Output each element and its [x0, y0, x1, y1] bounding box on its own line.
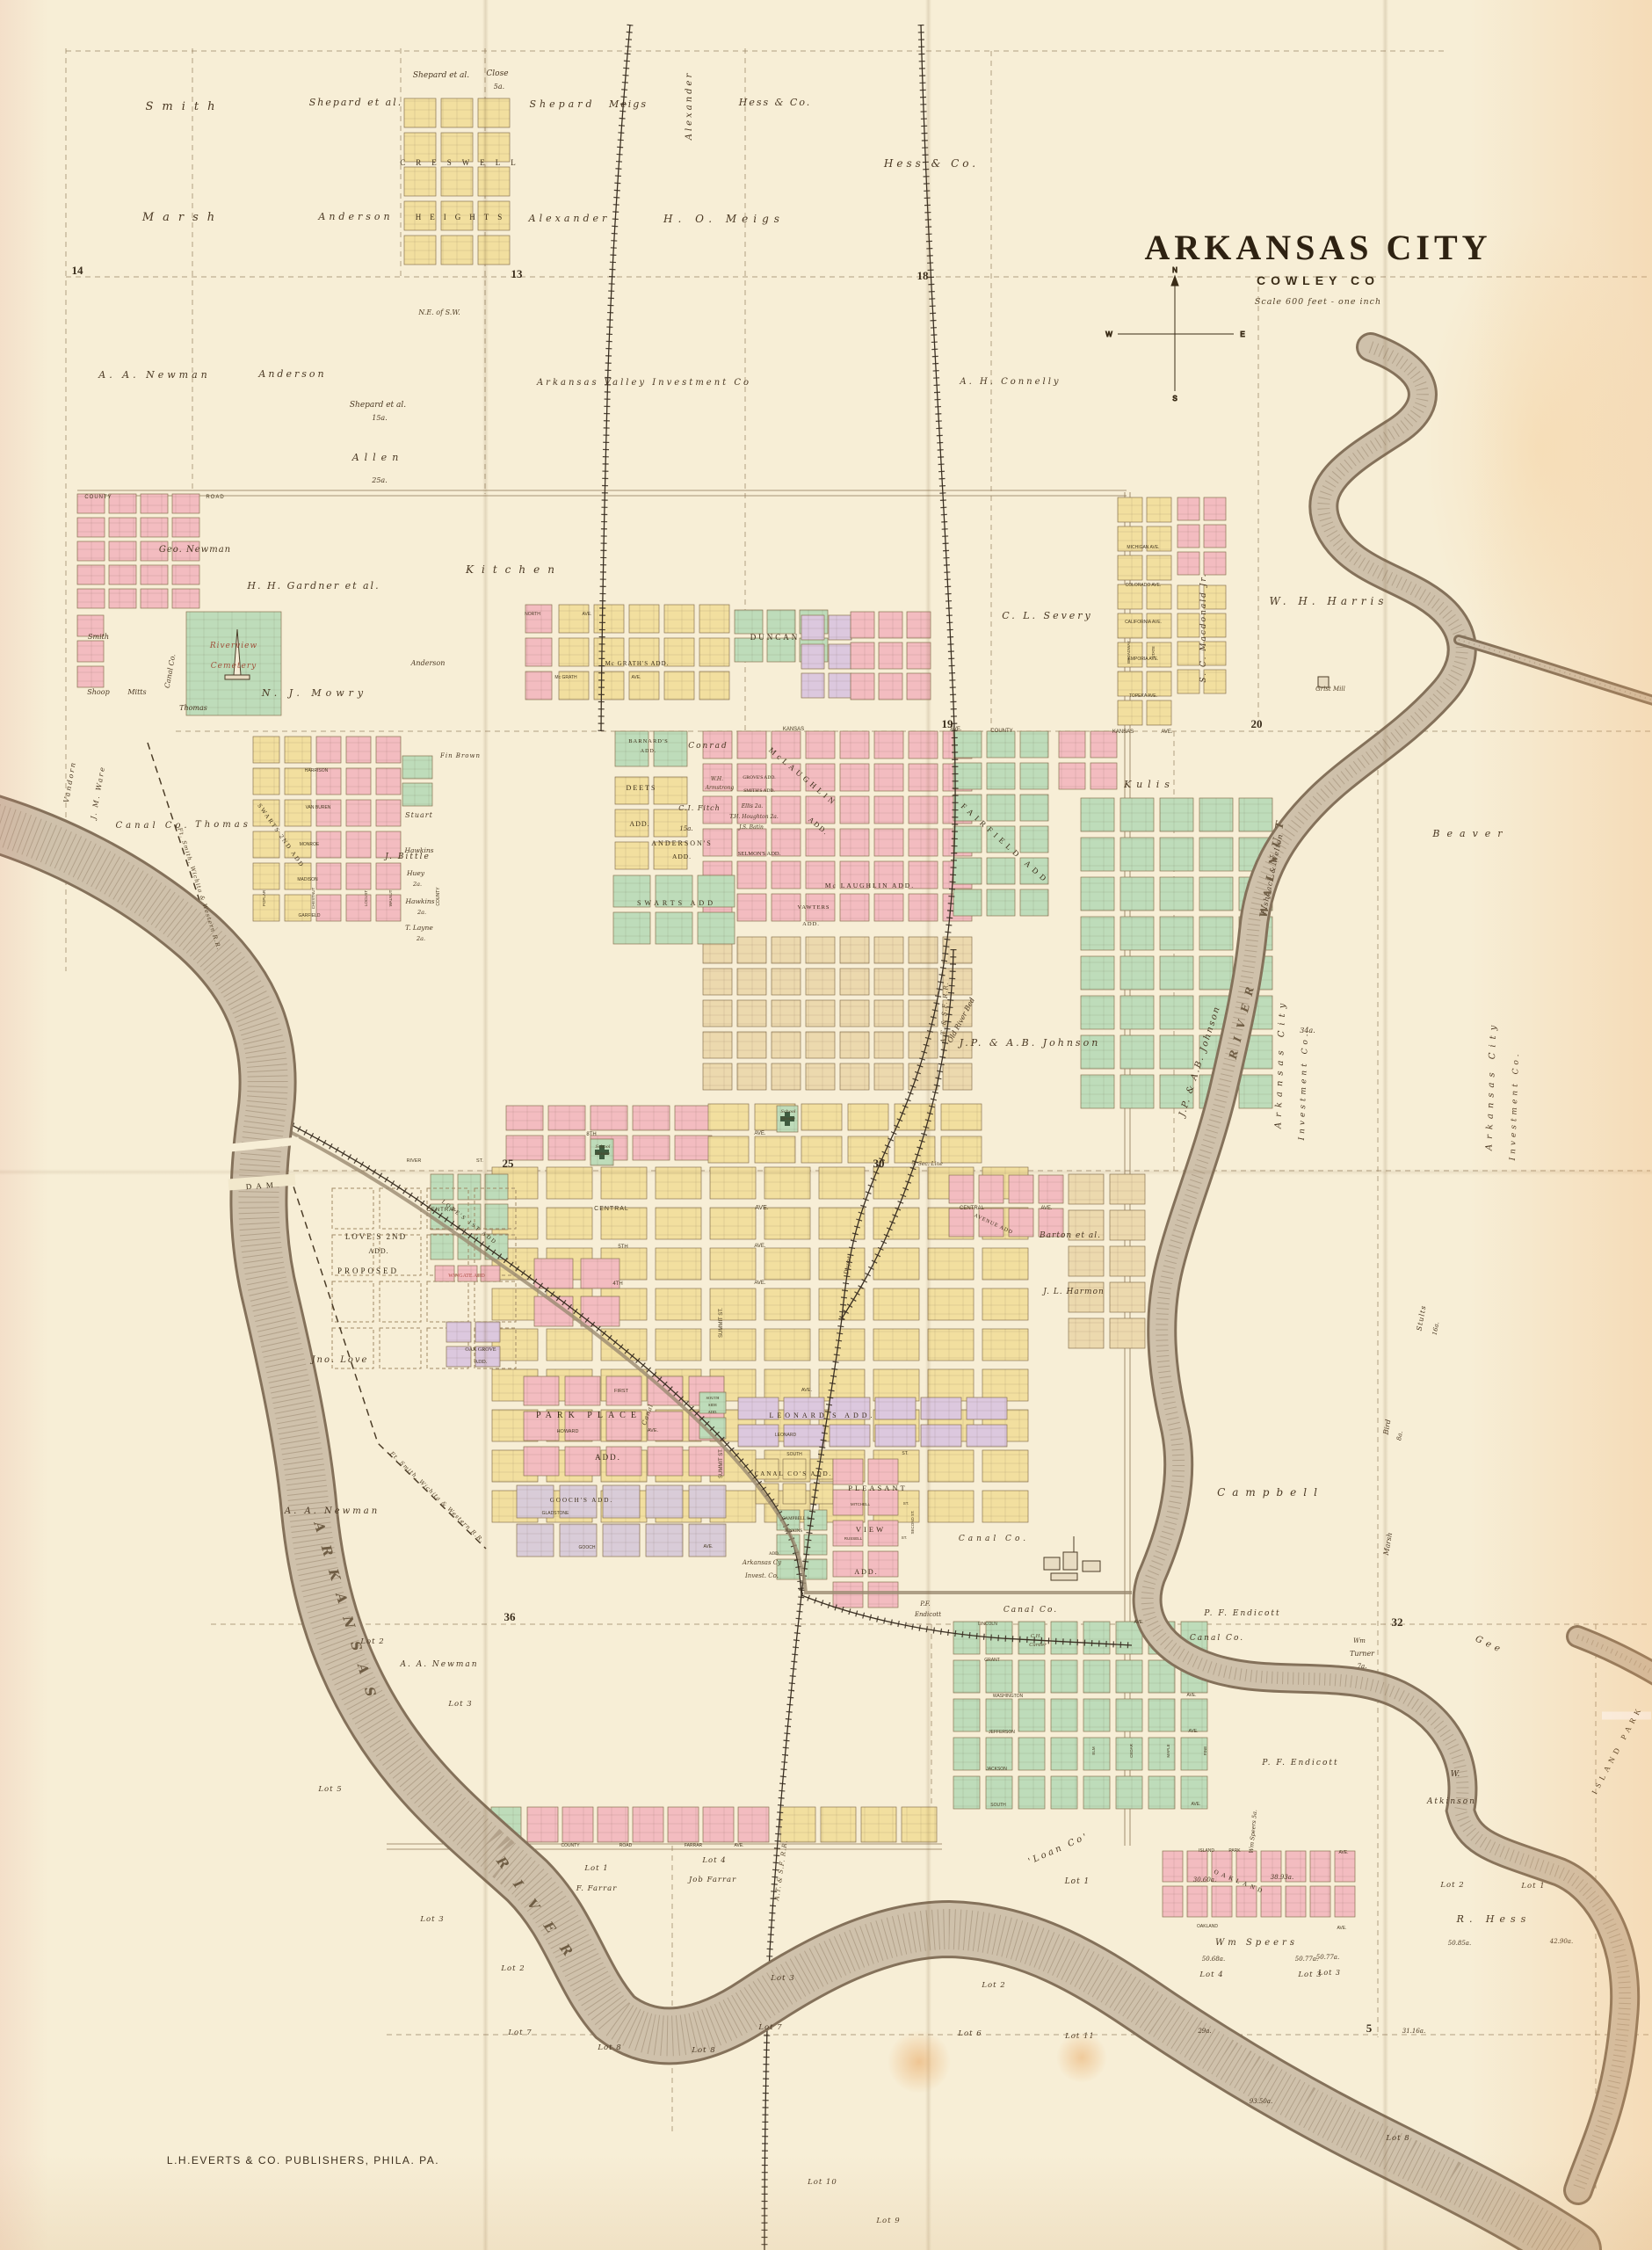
label-lot-4: Lot 4 — [1199, 1971, 1223, 1979]
label-h-o-meigs: H. O. Meigs — [663, 213, 785, 225]
label-thomas: Thomas — [179, 704, 207, 712]
label-walnut: WALNUT — [388, 889, 393, 906]
label-creswell: CRESWELL — [400, 158, 526, 167]
label-n-e-of-s-w: N.E. of S.W. — [417, 308, 460, 316]
label-2a: 2a. — [416, 935, 425, 942]
label-t-layne: T. Layne — [405, 924, 433, 932]
label-ave: AVE. — [1186, 1693, 1196, 1698]
label-hess-co: Hess & Co. — [883, 157, 979, 170]
label-ave: AVE. — [1134, 1620, 1143, 1625]
label-shepard-et-al: Shepard et al. — [413, 71, 469, 80]
label-lot-8: Lot 8 — [1385, 2134, 1409, 2143]
label-30-60a: 30.60a. — [1193, 1876, 1216, 1883]
label-locust: LOCUST — [364, 890, 368, 907]
label-c-i-fitch: C.I. Fitch — [678, 804, 721, 812]
label-allen: Allen — [351, 452, 404, 463]
label-hess-co: Hess & Co. — [738, 97, 812, 108]
label-elm: ELM — [1091, 1746, 1096, 1755]
label-st: ST. — [902, 1451, 908, 1456]
label-grant: GRANT — [984, 1658, 1000, 1663]
label-colorado-ave: COLORADO AVE. — [1126, 583, 1162, 588]
label-county: COUNTY — [436, 887, 441, 906]
label-broadway: BROADWAY — [1127, 641, 1131, 664]
label-gooch-s-add: GOOCH'S ADD. — [550, 1497, 613, 1504]
label-close: Close — [486, 69, 508, 78]
label-t-h-houghton-2a: T.H. Houghton 2a. — [729, 814, 779, 820]
label-wingate-add: WINGATE ADD — [448, 1274, 485, 1279]
label-mitts: Mitts — [127, 688, 146, 696]
section-number-18: 18 — [917, 269, 930, 282]
label-deets: DEETS — [627, 784, 657, 792]
label-anderson: Anderson — [410, 659, 446, 667]
label-selmon-s-add: SELMON'S ADD. — [738, 851, 781, 857]
label-add: ADD. — [595, 1453, 621, 1462]
label-ave: AVE. — [755, 1205, 768, 1211]
label-5th: 5TH — [618, 1245, 627, 1250]
label-ave: AVE. — [1161, 729, 1173, 735]
label-proposed: PROPOSED — [337, 1267, 399, 1275]
label-geo-newman: Geo. Newman — [159, 545, 231, 555]
label-ave: AVE. — [703, 1544, 713, 1550]
label-farrar: FARRAR — [685, 1843, 703, 1848]
label-marsh: Marsh — [1382, 1532, 1395, 1557]
label-p-f-endicott: P. F. Endicott — [1203, 1609, 1280, 1618]
label-mc-laughlin-add: Mc LAUGHLIN ADD. — [825, 882, 915, 889]
label-road: ROAD — [206, 495, 224, 500]
label-lot-9: Lot 9 — [875, 2217, 900, 2225]
east-yellow-add — [1118, 497, 1171, 725]
label-invest-co: Invest. Co. — [744, 1572, 779, 1579]
label-w-h-harris: W. H. Harris — [1269, 595, 1388, 607]
label-arkansas-cy: Arkansas Cy — [742, 1559, 782, 1566]
label-ave: AVE. — [754, 1131, 766, 1136]
label-river: RIVER — [407, 1158, 422, 1164]
label-ave: AVE. — [734, 1843, 743, 1848]
label-county: COUNTY — [990, 729, 1012, 734]
label-hawkins: Hawkins — [403, 846, 433, 854]
label-lot-1: Lot 1 — [1520, 1882, 1545, 1891]
label-anderson: Anderson — [317, 211, 393, 222]
label-oakland: OAKLAND — [1197, 1924, 1218, 1929]
label-oak-grove: OAK GROVE — [465, 1347, 496, 1353]
label-lot-8: Lot 8 — [597, 2043, 621, 2052]
label-h-h-gardner-et-al: H. H. Gardner et al. — [246, 580, 380, 592]
walnut-ne-arm — [1577, 1637, 1652, 1675]
label-first: FIRST — [614, 1389, 629, 1394]
label-ave: AVE. — [1188, 1729, 1198, 1734]
label-smith-s-add: SMITH'S ADD. — [743, 788, 775, 794]
label-canal-co: Canal Co. — [1004, 1606, 1058, 1615]
label-arkansas-city: Arkansas City — [1484, 1020, 1498, 1152]
section-number-13: 13 — [511, 267, 524, 280]
label-lot-2: Lot 2 — [981, 1981, 1005, 1990]
label-endicott: Endicott — [914, 1611, 941, 1618]
label-p-f: P.F. — [919, 1600, 931, 1608]
label-south: SOUTH — [706, 1396, 720, 1400]
label-duncan: DUNCAN — [750, 633, 801, 642]
label-34a: 34a. — [1300, 1027, 1315, 1034]
label-lot-3: Lot 3 — [1317, 1969, 1341, 1977]
label-love-s-2nd: LOVE'S 2ND — [345, 1232, 407, 1241]
label-campbell: CAMPBELL & — [782, 1517, 810, 1521]
label-wm-speers: Wm Speers — [1215, 1938, 1298, 1948]
label-lot-3: Lot 3 — [770, 1974, 794, 1983]
label-ave: AVE. — [1040, 1206, 1053, 1211]
compass-s: S — [1172, 395, 1177, 403]
label-wm-speers-5a: Wm Speers 5a. — [1248, 1810, 1258, 1854]
north-yellow-band — [708, 1104, 982, 1163]
label-smith: Smith — [88, 633, 109, 641]
label-ave: AVE. — [754, 1281, 766, 1286]
label-lot-4: Lot 4 — [701, 1856, 726, 1865]
label-add: ADD. — [708, 1410, 718, 1414]
map-title: ARKANSAS CITY — [1144, 228, 1491, 267]
label-j-p-a-b-johnson: J.P. & A.B. Johnson — [958, 1037, 1101, 1049]
label-alexander: Alexander — [528, 213, 611, 224]
label-harrison: HARRISON — [305, 768, 329, 773]
label-madison: MADISON — [297, 877, 318, 882]
label-arkansas-city: Arkansas City — [1273, 998, 1287, 1130]
label-29a: 29a. — [1197, 2028, 1211, 2035]
label-leonard-s-add: LEONARD'S ADD. — [770, 1412, 876, 1419]
section-number-19: 19 — [942, 717, 954, 730]
label-van-buren: VAN BUREN — [306, 805, 331, 810]
label-st: ST. — [902, 1535, 908, 1540]
section-number-25: 25 — [503, 1157, 515, 1170]
label-15a: 15a. — [372, 414, 388, 422]
central-tan-blocks — [703, 937, 972, 1090]
label-lot-5: Lot 5 — [317, 1785, 342, 1794]
label-wm: Wm — [1353, 1637, 1366, 1644]
label-ave: AVE. — [754, 1244, 766, 1249]
label-lot-6: Lot 6 — [957, 2029, 982, 2038]
label-county: COUNTY — [84, 495, 112, 500]
label-lot-11: Lot 11 — [1064, 2032, 1095, 2041]
label-add: ADD. — [641, 749, 657, 754]
label-gladstone: GLADSTONE — [542, 1511, 569, 1516]
label-canal-co: Canal Co. — [163, 653, 178, 688]
label-county: COUNTY — [561, 1843, 580, 1848]
rubys-add — [525, 605, 552, 700]
label-a-a-newman: A. A. Newman — [399, 1660, 478, 1669]
label-second-st: SECOND ST. — [910, 1510, 915, 1534]
label-turner: Turner — [1350, 1650, 1375, 1658]
label-25a: 25a. — [371, 476, 388, 484]
label-fin-brown: Fin Brown — [439, 752, 481, 759]
label-job-farrar: Job Farrar — [687, 1876, 736, 1884]
ne2-pink-add — [1177, 497, 1226, 575]
label-shepard-et-al: Shepard et al. — [350, 401, 406, 410]
label-shoop: Shoop — [87, 688, 109, 696]
label-a-a-newman: A. A. Newman — [98, 369, 211, 381]
label-arkansas-valley-investment-co: Arkansas Valley Investment Co — [536, 378, 751, 388]
label-w-h: W.H. — [711, 776, 723, 782]
label-jno-love: Jno. Love — [310, 1355, 369, 1365]
label-c-h: C.H. — [1031, 1634, 1042, 1639]
label-8a: 8a. — [1395, 1431, 1404, 1441]
label-kitchen: Kitchen — [465, 563, 562, 576]
label-j-s-batin: J.S. Batin — [737, 824, 764, 831]
label-armstrong: Armstrong — [705, 785, 735, 791]
label-ave: AVE. — [648, 1428, 659, 1433]
label-f-farrar: F. Farrar — [576, 1884, 618, 1893]
label-side: SIDE — [708, 1403, 717, 1407]
label-lot-2: Lot 2 — [500, 1964, 525, 1973]
label-russell: RUSSELL — [844, 1536, 863, 1541]
label-7a: 7a. — [1358, 1663, 1367, 1670]
label-grist-mill: Grist Mill — [1315, 686, 1345, 693]
west-edge-add — [77, 615, 104, 687]
label-canal-co: Canal Co. — [959, 1535, 1029, 1543]
label-park: PARK — [1228, 1848, 1241, 1854]
label-road: ROAD — [619, 1843, 633, 1848]
label-a-h-connelly: A. H. Connelly — [959, 377, 1061, 387]
label-south: SOUTH — [990, 1803, 1006, 1808]
label-c-l-severy: C. L. Severy — [1002, 610, 1093, 621]
label-atkinson: Atkinson — [1426, 1797, 1476, 1806]
label-lot-1: Lot 1 — [1064, 1877, 1090, 1886]
label-heights: HEIGHTS — [416, 213, 511, 221]
map-canvas: N W E S ARKANSAS CITY COWLEY CO Scale 60… — [0, 0, 1652, 2250]
label-vandorn: Vandorn — [62, 760, 77, 803]
label-monroe: MONROE — [300, 842, 320, 847]
label-r-hess: R. Hess — [1456, 1913, 1532, 1925]
mill-creek — [1459, 640, 1652, 701]
creswell-heights — [404, 98, 510, 265]
label-island: ISLAND — [1199, 1848, 1214, 1854]
label-bird: Bird — [1381, 1419, 1392, 1436]
sw-pink-strip — [527, 1807, 769, 1842]
mcgraths-add — [559, 605, 729, 700]
label-summit-st: SUMMIT ST. — [719, 1308, 724, 1338]
label-howard: HOWARD — [557, 1429, 579, 1434]
label-california-ave: CALIFORNIA AVE. — [1125, 620, 1162, 625]
label-s-c-macdonald-jr: S. C. Macdonald Jr. — [1199, 572, 1208, 682]
label-2a: 2a. — [412, 881, 422, 888]
label-maple: MAPLE — [1166, 1744, 1170, 1757]
section-number-32: 32 — [1392, 1615, 1403, 1629]
label-5a: 5a. — [494, 83, 504, 91]
label-washington: WASHINGTON — [993, 1694, 1024, 1699]
label-canal-co-s-add: CANAL CO'S ADD. — [755, 1470, 833, 1477]
label-add: ADD. — [802, 921, 820, 927]
label-school: School — [780, 1109, 795, 1114]
label-anderson-s: ANDERSON'S — [651, 839, 712, 847]
label-st: ST. — [903, 1501, 909, 1506]
sw-yellow-strip — [780, 1807, 937, 1842]
label-mitchell: MITCHELL — [851, 1502, 871, 1506]
label-ave: AVE. — [582, 612, 591, 617]
ne-pink-add — [851, 612, 931, 700]
label-mc-grath: Mc GRATH — [554, 675, 577, 680]
section-number-14: 14 — [72, 264, 84, 277]
label-central: CENTRAL — [960, 1206, 985, 1211]
label-campbell: Campbell — [1217, 1486, 1324, 1499]
east-tan-strip — [1069, 1174, 1145, 1348]
label-add: ADD. — [854, 1568, 878, 1576]
label-alexander: Alexander — [685, 71, 694, 141]
canal-mills — [1044, 1536, 1100, 1580]
label-topeka-ave: TOPEKA AVE. — [1129, 693, 1157, 699]
label-smith: Smith — [146, 100, 224, 113]
label-add: ADD. — [475, 1360, 488, 1365]
label-lot-7: Lot 7 — [507, 2029, 532, 2037]
label-15a: 15a. — [679, 825, 692, 832]
label-vawters: VAWTERS — [797, 904, 830, 911]
label-grove-s-add: GROVE'S ADD. — [743, 775, 776, 780]
oakland-add — [1163, 1851, 1355, 1917]
section-number-20: 20 — [1251, 717, 1263, 730]
label-cedar: CEDAR — [1129, 1743, 1134, 1758]
label-beaver: Beaver — [1431, 828, 1509, 839]
east-pink-add — [1059, 731, 1117, 789]
label-gooch: GOOCH — [579, 1545, 596, 1550]
label-42-90a: 42.90a. — [1549, 1938, 1573, 1945]
label-ave: AVE. — [801, 1388, 813, 1393]
label-add: ADD. — [672, 853, 692, 860]
label-w: W. — [1451, 1770, 1460, 1779]
label-ave: AVE. — [1191, 1802, 1200, 1807]
label-barton-et-al: Barton et al. — [1039, 1231, 1101, 1240]
label-st: ST. — [476, 1158, 483, 1164]
label-garfield: GARFIELD — [298, 913, 320, 918]
label-50-77a: 50.77a. — [1316, 1954, 1339, 1961]
label-stuart: Stuart — [405, 811, 433, 819]
label-meigs: Meigs — [608, 98, 648, 110]
label-lot-7: Lot 7 — [757, 2023, 782, 2032]
coombs-green — [402, 756, 432, 806]
label-ellis-2a: Ellis 2a. — [741, 803, 764, 809]
label-ave: AVE. — [631, 675, 641, 680]
label-stults: Stults — [1416, 1304, 1428, 1332]
label-investment-co: Investment Co. — [1298, 1030, 1310, 1141]
label-lot-3: Lot 3 — [447, 1700, 472, 1709]
label-loan-co: 'Loan Co' — [1027, 1832, 1090, 1867]
compass-rose: N W E S — [1105, 266, 1244, 403]
label-add: ADD. — [769, 1552, 779, 1557]
compass-n: N — [1172, 266, 1177, 274]
label-50-77a: 50.77a. — [1295, 1956, 1318, 1963]
compass-w: W — [1105, 330, 1112, 338]
label-kansas: KANSAS — [1112, 729, 1134, 735]
label-2a: 2a. — [417, 909, 426, 916]
label-marsh: Marsh — [141, 211, 223, 224]
label-50-85a: 50.85a. — [1448, 1940, 1471, 1947]
label-j-m-ware: J. M. Ware — [89, 765, 106, 821]
label-31-16a: 31.16a. — [1402, 2028, 1425, 2035]
label-38-93a: 38.93a. — [1271, 1874, 1293, 1881]
map-subtitle: COWLEY CO — [1257, 273, 1380, 287]
label-4th: 4TH — [612, 1281, 622, 1287]
label-anderson: Anderson — [257, 368, 326, 380]
publisher-imprint: L.H.EVERTS & CO. PUBLISHERS, PHILA. PA. — [167, 2154, 439, 2167]
section-number-36: 36 — [504, 1610, 517, 1623]
label-swarts-add: SWARTS ADD — [637, 899, 716, 907]
label-lincoln: LINCOLN — [978, 1622, 997, 1627]
label-add: ADD. — [629, 820, 649, 828]
map-scale: Scale 600 feet - one inch — [1255, 297, 1381, 307]
label-kansas: KANSAS — [783, 727, 804, 732]
label-8th: 8TH — [586, 1132, 596, 1137]
label-state: STATE — [1151, 646, 1156, 658]
label-lot-1: Lot 1 — [583, 1864, 608, 1873]
section-number-30: 30 — [873, 1157, 885, 1170]
section-number-5: 5 — [1366, 2021, 1373, 2035]
label-canal-co: Canal Co. — [1190, 1634, 1244, 1643]
label-chestnut: CHESTNUT — [311, 887, 315, 909]
label-mc-grath-s-add: Mc GRATH'S ADD. — [605, 660, 670, 667]
label-a-a-newman: A. A. Newman — [284, 1506, 380, 1516]
label-park-place: PARK PLACE — [536, 1411, 641, 1420]
label-jefferson: JEFFERSON — [989, 1730, 1015, 1735]
label-lot-8: Lot 8 — [691, 2046, 715, 2055]
label-kulis: Kulis — [1123, 779, 1175, 790]
label-riverview: Riverview — [209, 642, 257, 650]
label-central: CENTRAL — [594, 1206, 629, 1212]
label-summit-st: SUMMIT ST. — [719, 1448, 724, 1478]
label-school: School — [595, 1144, 610, 1150]
label-north: NORTH — [525, 612, 540, 617]
label-barnard-s: BARNARD'S — [628, 738, 669, 744]
label-16a: 16a. — [1431, 1321, 1441, 1335]
label-shepard: Shepard — [529, 98, 595, 110]
label-huey: Huey — [406, 869, 425, 877]
label-house: House — [780, 1116, 795, 1121]
label-poplar: POPLAR — [262, 889, 266, 906]
label-jenkins: JENKINS — [785, 1529, 802, 1534]
label-jackson: JACKSON — [986, 1767, 1007, 1772]
label-ave: AVE. — [1337, 1926, 1346, 1931]
compass-e: E — [1240, 330, 1244, 338]
label-south: SOUTH — [786, 1452, 802, 1457]
label-leonard: LEONARD — [775, 1433, 797, 1438]
label-93-50a: 93.50a. — [1250, 2098, 1272, 2105]
label-ave: AVE. — [1338, 1850, 1348, 1855]
label-carder: Carder — [1029, 1643, 1047, 1648]
label-50-68a: 50.68a. — [1202, 1956, 1225, 1963]
label-hawkins: Hawkins — [404, 897, 434, 905]
label-cemetery: Cemetery — [211, 662, 257, 671]
label-pleasant: PLEASANT — [848, 1484, 907, 1492]
label-sec-line: ¼ Sec. Line — [911, 1161, 943, 1167]
label-gee: Gee — [1474, 1634, 1505, 1656]
label-ft-smith-wichita-western-r-r: Ft. Smith, Wichita & Western R.R. — [388, 1449, 485, 1544]
label-lot-2: Lot 2 — [1439, 1881, 1464, 1890]
arkansas-city-plat-map: N W E S ARKANSAS CITY COWLEY CO Scale 60… — [0, 0, 1652, 2250]
label-pine: PINE — [1203, 1746, 1207, 1756]
label-p-f-endicott: P. F. Endicott — [1261, 1759, 1338, 1767]
label-investment-co: Investment Co. — [1509, 1050, 1521, 1161]
label-lot-3: Lot 3 — [419, 1915, 444, 1924]
label-view: VIEW — [856, 1525, 886, 1534]
label-lot-10: Lot 10 — [807, 2178, 837, 2187]
label-n-j-mowry: N. J. Mowry — [261, 687, 367, 699]
label-j-l-harmon: J. L. Harmon — [1041, 1288, 1105, 1296]
label-house: House — [595, 1151, 610, 1157]
label-add: ADD. — [368, 1247, 388, 1255]
label-thomas: Thomas — [195, 820, 251, 830]
label-shepard-et-al: Shepard et al. — [309, 97, 403, 108]
label-michigan-ave: MICHIGAN AVE. — [1127, 545, 1159, 550]
label-conrad: Conrad — [688, 742, 728, 751]
